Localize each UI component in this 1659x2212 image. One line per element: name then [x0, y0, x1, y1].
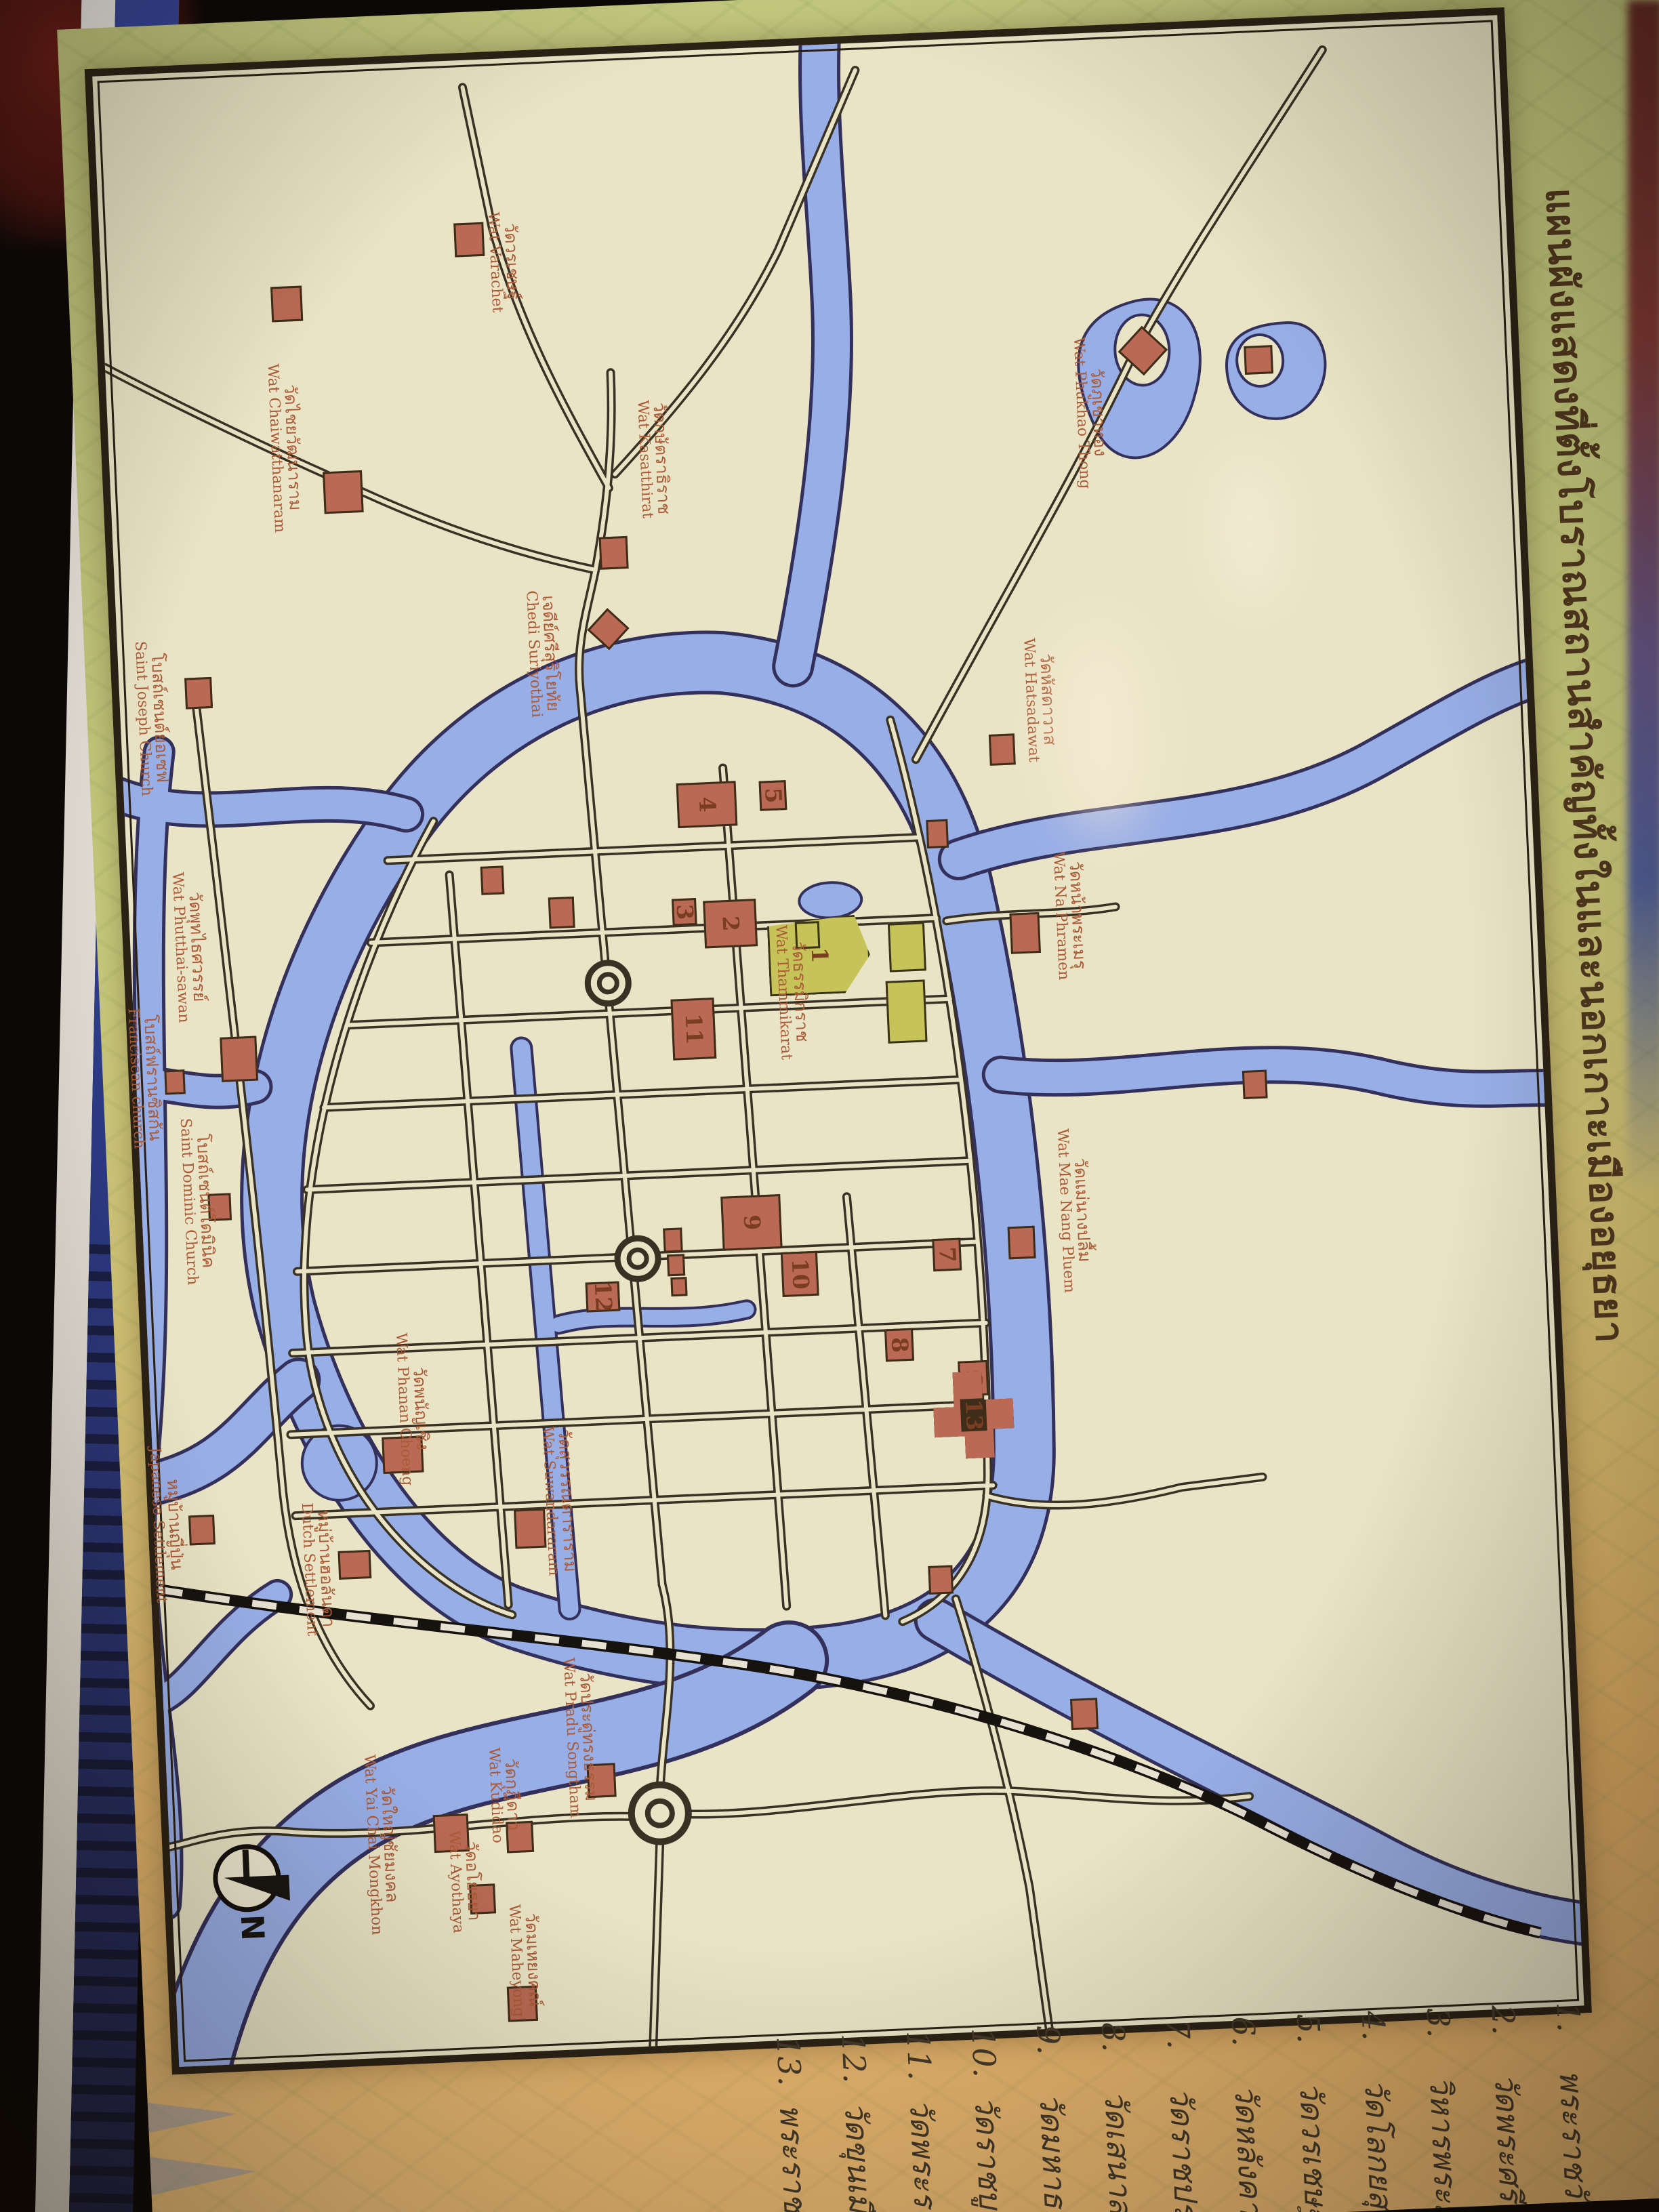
- place-label: วัดกุฎีดาว Wat Kudidao: [485, 1746, 524, 1843]
- compass-north-label: N: [234, 1914, 272, 1942]
- photo-of-printed-map: แผนผังแสดงที่ตั้งโบราณสถานสำคัญทั้งในและ…: [0, 0, 1659, 2212]
- legend-site-name: พระราชวังหลวง: [1553, 2070, 1599, 2212]
- place-label: โบสถ์ฟรานซิสกัน Franciscan church: [125, 1007, 165, 1149]
- legend-site-name: วัดหลังคาขาว: [1227, 2084, 1272, 2212]
- numbered-site-block: 12: [586, 1281, 621, 1312]
- numbered-site-block: 8: [884, 1328, 914, 1362]
- map-legend: 1. พระราชวังหลวง 2. วัดพระศรีสรรเพชญ์ 3.…: [755, 2001, 1612, 2212]
- legend-item: 10. วัดราชบูรณะ: [950, 2026, 1027, 2212]
- place-label: โบสถ์เซนต์ยอเซฟ Saint Joseph Church: [131, 640, 173, 796]
- place-label: วัดหน้าพระเมรุ Wat Na Phramen: [1050, 851, 1090, 981]
- legend-item: 3. วิหารพระมงคลบพิตร: [1405, 2007, 1481, 2212]
- legend-item: 6. วัดหลังคาขาว: [1210, 2015, 1287, 2212]
- place-label: วัดพุทไธศวรรย์ Wat Phutthai-sawan: [169, 871, 209, 1023]
- place-label: วัดสุวรรณดาราราม Wat Suwandararam: [539, 1425, 579, 1576]
- temple-block: [1070, 1698, 1099, 1730]
- temple-block: [548, 897, 575, 929]
- legend-item: 12. วัดขุนเมืองใจ: [820, 2032, 897, 2212]
- place-label: วัดอโยธยา Wat Ayothaya: [445, 1829, 484, 1933]
- legend-item: 1. พระราชวังหลวง: [1535, 2001, 1612, 2212]
- temple-block: [480, 865, 505, 895]
- temple-block: [667, 1254, 685, 1276]
- compass-rose: N: [211, 1843, 282, 1913]
- temple-block: [164, 1069, 186, 1094]
- temple-block: [1009, 912, 1041, 954]
- temple-block: [886, 979, 928, 1043]
- legend-number: 12.: [820, 2032, 888, 2093]
- temple-block: [337, 1550, 371, 1580]
- temple-block: [1008, 1226, 1036, 1260]
- temple-block: [670, 1277, 687, 1296]
- place-label: วัดประดู่ทรงธรรม Wat Pradu Songtham: [560, 1656, 601, 1818]
- place-label: วัดหัสดาวาส Wat Hatsadawat: [1020, 637, 1060, 762]
- legend-item: 11. วัดพระราม: [885, 2029, 962, 2212]
- legend-site-name: วัดพระราม: [903, 2098, 945, 2212]
- temple-block: [1242, 1070, 1268, 1100]
- legend-number: 13.: [755, 2035, 823, 2096]
- temple-block: [1244, 345, 1273, 375]
- legend-number: 11.: [885, 2029, 953, 2090]
- legend-number: 8.: [1080, 2021, 1148, 2082]
- legend-site-name: พระราชวังจันทรเกษม: [773, 2104, 822, 2212]
- north-arrow-icon: [224, 1875, 290, 1904]
- legend-site-name: วัดขุนเมืองใจ: [838, 2101, 882, 2212]
- legend-number: 4.: [1340, 2009, 1408, 2070]
- legend-site-name: วัดวรเชษฐาราม: [1292, 2081, 1338, 2212]
- legend-item: 2. วัดพระศรีสรรเพชญ์: [1470, 2004, 1547, 2212]
- legend-number: 10.: [950, 2026, 1018, 2087]
- place-label: หมู่บ้านญี่ปุ่น Japanese Settlement: [146, 1446, 188, 1603]
- place-label: วัดแม่นางปลื้ม Wat Mae Nang Pluem: [1054, 1128, 1095, 1294]
- temple-block: [220, 1036, 258, 1082]
- numbered-site-block: 5: [759, 780, 787, 811]
- place-label: วัดพนัญเชิง Wat Phanan Choeng: [392, 1332, 434, 1486]
- map-sheet: 12345678910111213 วัดภูเขาทอง Wat Phukha…: [85, 7, 1592, 2075]
- compass-bar: [243, 1849, 250, 1878]
- numbered-site-block: 2: [703, 899, 758, 948]
- numbered-site-block: 7: [932, 1237, 962, 1271]
- legend-item: 8. วัดเสนาสนาราม: [1080, 2021, 1157, 2212]
- numbered-site-block: 4: [676, 781, 738, 828]
- temple-block: [599, 536, 629, 570]
- legend-site-name: วัดมหาธาตุ: [1032, 2092, 1076, 2212]
- place-label: หมู่บ้านฮอลันดา Dutch Settlement: [298, 1502, 338, 1637]
- place-label: วัดธรรมิกราช Wat Thammikarat: [772, 924, 812, 1060]
- temple-block: [989, 733, 1016, 766]
- legend-number: 3.: [1405, 2007, 1473, 2068]
- numbered-site-block: 3: [672, 898, 697, 926]
- legend-site-name: วัดพระศรีสรรเพชญ์: [1488, 2072, 1536, 2212]
- temple-block: [928, 1565, 954, 1595]
- legend-number: 5.: [1275, 2012, 1343, 2073]
- place-label: วัดกษัตราธิราช Wat Kasatthirat: [634, 399, 673, 519]
- legend-item: 9. วัดมหาธาตุ: [1015, 2024, 1092, 2212]
- place-label: วัดไชยวัฒนาราม Wat Chaiwatthanaram: [264, 363, 306, 533]
- place-label: วัดภูเขาทอง Wat Phukhao Thong: [1070, 336, 1111, 489]
- place-label-english: Wat Varachet: [485, 211, 505, 313]
- pagoda-decoration: [140, 2070, 270, 2212]
- place-label-english: Wat Kudidao: [485, 1747, 506, 1843]
- temple-block: [188, 1515, 216, 1546]
- numbered-site-block: 9: [720, 1194, 782, 1251]
- temple-block: [270, 286, 303, 323]
- legend-number: 2.: [1470, 2004, 1538, 2065]
- map-terrain-graphic: [92, 15, 1584, 2067]
- legend-site-name: วิหารพระมงคลบพิตร: [1422, 2075, 1471, 2212]
- legend-item: 5. วัดวรเชษฐาราม: [1275, 2012, 1352, 2212]
- legend-item: 13. พระราชวังจันทรเกษม: [755, 2035, 832, 2212]
- legend-site-name: วัดราชประดิษฐาน: [1162, 2087, 1210, 2212]
- temple-block: [663, 1227, 683, 1252]
- legend-site-name: วัดราชบูรณะ: [967, 2095, 1011, 2212]
- temple-block: [514, 1509, 546, 1549]
- temple-block: [926, 819, 949, 848]
- temple-block: [888, 922, 926, 972]
- legend-number: 1.: [1535, 2001, 1603, 2062]
- legend-item: 7. วัดราชประดิษฐาน: [1145, 2018, 1222, 2212]
- temple-block: [323, 470, 364, 514]
- legend-item: 4. วัดโลกยสุธาราม: [1340, 2009, 1417, 2212]
- place-label: วัดวรเชษฐ์ Wat Varachet: [485, 211, 523, 313]
- legend-number: 9.: [1015, 2024, 1083, 2085]
- legend-site-name: วัดโลกยสุธาราม: [1357, 2078, 1404, 2212]
- place-label: วัดมเหยงคณ์ Wat Maheyong: [506, 1903, 545, 2017]
- temple-block: [453, 222, 485, 258]
- place-label: เจดีย์ศรีสุริโยทัย Chedi Suriyothai: [523, 590, 563, 718]
- place-label: โบสถ์เซนต์โดมินิค Saint Dominic Church: [177, 1117, 218, 1286]
- legend-site-name: วัดเสนาสนาราม: [1097, 2089, 1143, 2212]
- temple-block: [184, 677, 213, 710]
- printed-page: แผนผังแสดงที่ตั้งโบราณสถานสำคัญทั้งในและ…: [57, 0, 1659, 2212]
- legend-number: 6.: [1210, 2015, 1278, 2076]
- legend-number: 7.: [1145, 2018, 1213, 2078]
- numbered-site-block: 11: [670, 998, 716, 1061]
- numbered-site-block: 10: [781, 1251, 819, 1297]
